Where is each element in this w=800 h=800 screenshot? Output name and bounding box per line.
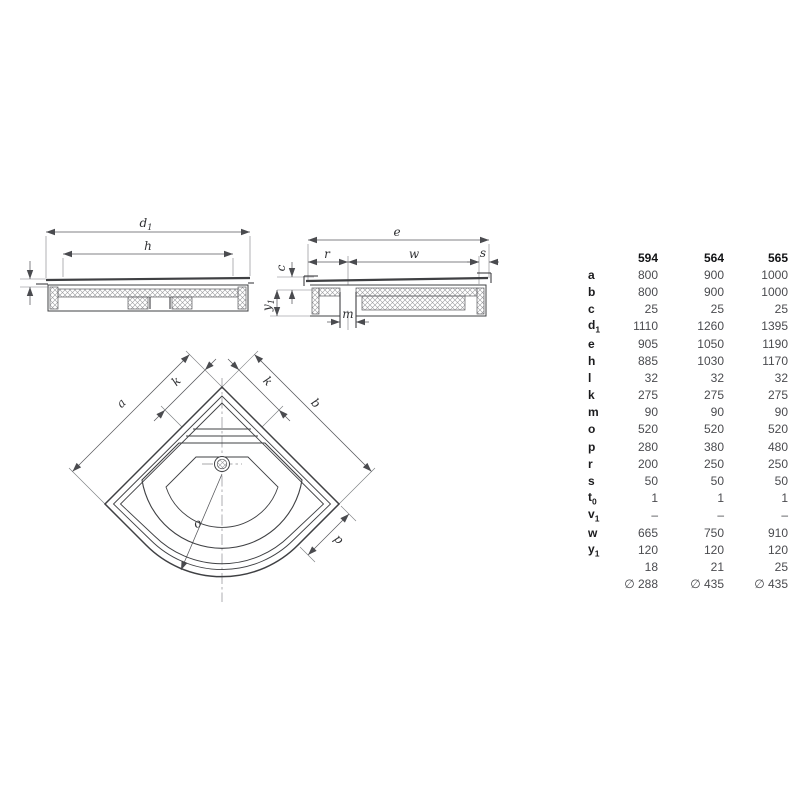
dim-label-b: b xyxy=(308,396,323,411)
dim-label-y1: y1 xyxy=(260,299,277,312)
spec-table-body: a8009001000b8009001000c252525d1111012601… xyxy=(586,266,788,593)
dim-label-h: h xyxy=(144,239,152,253)
value-cell: – xyxy=(610,508,658,522)
value-cell: 900 xyxy=(658,268,724,282)
value-cell: 50 xyxy=(658,474,724,488)
dim-label-d1: d1 xyxy=(139,216,152,233)
table-row: y1120120120 xyxy=(586,541,788,558)
plan-view: a b k k p o xyxy=(69,351,375,602)
value-cell: 800 xyxy=(610,285,658,299)
row-label: d1 xyxy=(586,318,610,334)
value-cell: 900 xyxy=(658,285,724,299)
value-cell: 520 xyxy=(724,422,788,436)
table-row: s505050 xyxy=(586,472,788,489)
value-cell: 250 xyxy=(724,457,788,471)
value-cell: 380 xyxy=(658,440,724,454)
dim-label-e: e xyxy=(393,225,400,239)
value-cell: 520 xyxy=(610,422,658,436)
value-cell: 1000 xyxy=(724,285,788,299)
spec-table: 594 564 565 a8009001000b8009001000c25252… xyxy=(586,249,788,593)
value-cell: 250 xyxy=(658,457,724,471)
dim-label-p: p xyxy=(331,532,347,548)
value-cell: 50 xyxy=(610,474,658,488)
value-cell: 905 xyxy=(610,337,658,351)
value-cell: 1395 xyxy=(724,319,788,333)
row-label: a xyxy=(586,268,610,282)
value-cell: 25 xyxy=(724,560,788,574)
value-cell: 1110 xyxy=(610,319,658,333)
value-cell: 1030 xyxy=(658,354,724,368)
value-cell: 750 xyxy=(658,526,724,540)
value-cell: 120 xyxy=(610,543,658,557)
row-label: m xyxy=(586,405,610,419)
value-cell: ∅ 435 xyxy=(658,577,724,591)
row-label: v1 xyxy=(586,507,610,523)
value-cell: ∅ 288 xyxy=(610,577,658,591)
table-row: h88510301170 xyxy=(586,352,788,369)
value-cell: 21 xyxy=(658,560,724,574)
dim-label-o: o xyxy=(192,515,204,531)
table-row: c252525 xyxy=(586,301,788,318)
dim-label-s: s xyxy=(480,246,486,260)
value-cell: 275 xyxy=(724,388,788,402)
table-row: e90510501190 xyxy=(586,335,788,352)
value-cell: 1050 xyxy=(658,337,724,351)
table-row: d1111012601395 xyxy=(586,318,788,335)
value-cell: ∅ 435 xyxy=(724,577,788,591)
value-cell: – xyxy=(658,508,724,522)
value-cell: 200 xyxy=(610,457,658,471)
dim-label-a: a xyxy=(114,396,129,411)
value-cell: – xyxy=(724,508,788,522)
row-label: c xyxy=(586,302,610,316)
row-label: r xyxy=(586,457,610,471)
column-header: 594 xyxy=(610,251,658,265)
dim-label-r: r xyxy=(324,247,331,261)
table-row: w665750910 xyxy=(586,524,788,541)
row-label: l xyxy=(586,371,610,385)
column-header: 564 xyxy=(658,251,724,265)
table-row: ∅ 288∅ 435∅ 435 xyxy=(586,576,788,593)
column-header: 565 xyxy=(724,251,788,265)
value-cell: 90 xyxy=(724,405,788,419)
table-row: o520520520 xyxy=(586,421,788,438)
row-label: k xyxy=(586,388,610,402)
table-row: v1––– xyxy=(586,507,788,524)
value-cell: 25 xyxy=(610,302,658,316)
dim-label-w: w xyxy=(409,247,420,261)
value-cell: 275 xyxy=(610,388,658,402)
table-row: p280380480 xyxy=(586,438,788,455)
table-header-row: 594 564 565 xyxy=(586,249,788,266)
table-row: 182125 xyxy=(586,558,788,575)
table-row: t0111 xyxy=(586,490,788,507)
table-row: a8009001000 xyxy=(586,266,788,283)
value-cell: 280 xyxy=(610,440,658,454)
value-cell: 800 xyxy=(610,268,658,282)
value-cell: 1 xyxy=(724,491,788,505)
table-row: l323232 xyxy=(586,369,788,386)
value-cell: 910 xyxy=(724,526,788,540)
row-label: w xyxy=(586,526,610,540)
value-cell: 32 xyxy=(724,371,788,385)
value-cell: 885 xyxy=(610,354,658,368)
row-label: o xyxy=(586,422,610,436)
value-cell: 480 xyxy=(724,440,788,454)
value-cell: 25 xyxy=(724,302,788,316)
row-label: y1 xyxy=(586,542,610,558)
value-cell: 32 xyxy=(610,371,658,385)
value-cell: 665 xyxy=(610,526,658,540)
value-cell: 1 xyxy=(658,491,724,505)
value-cell: 50 xyxy=(724,474,788,488)
value-cell: 25 xyxy=(658,302,724,316)
value-cell: 18 xyxy=(610,560,658,574)
row-label: t0 xyxy=(586,490,610,506)
value-cell: 1000 xyxy=(724,268,788,282)
dim-label-m: m xyxy=(342,307,353,321)
value-cell: 90 xyxy=(610,405,658,419)
value-cell: 1190 xyxy=(724,337,788,351)
value-cell: 1260 xyxy=(658,319,724,333)
value-cell: 120 xyxy=(724,543,788,557)
dim-label-c: c xyxy=(274,264,288,271)
value-cell: 1 xyxy=(610,491,658,505)
row-label: p xyxy=(586,440,610,454)
value-cell: 32 xyxy=(658,371,724,385)
front-section-view: d1 h xyxy=(20,216,254,311)
value-cell: 275 xyxy=(658,388,724,402)
dim-label-k-left: k xyxy=(169,374,184,389)
side-section-view: e r w s c y1 xyxy=(260,225,499,330)
value-cell: 1170 xyxy=(724,354,788,368)
row-label: e xyxy=(586,337,610,351)
shower-tray-spec-sheet: d1 h xyxy=(0,0,800,800)
table-row: k275275275 xyxy=(586,387,788,404)
row-label: s xyxy=(586,474,610,488)
table-row: m909090 xyxy=(586,404,788,421)
value-cell: 90 xyxy=(658,405,724,419)
row-label: h xyxy=(586,354,610,368)
value-cell: 120 xyxy=(658,543,724,557)
table-row: b8009001000 xyxy=(586,283,788,300)
table-row: r200250250 xyxy=(586,455,788,472)
dim-label-k-right: k xyxy=(260,374,275,389)
value-cell: 520 xyxy=(658,422,724,436)
row-label: b xyxy=(586,285,610,299)
